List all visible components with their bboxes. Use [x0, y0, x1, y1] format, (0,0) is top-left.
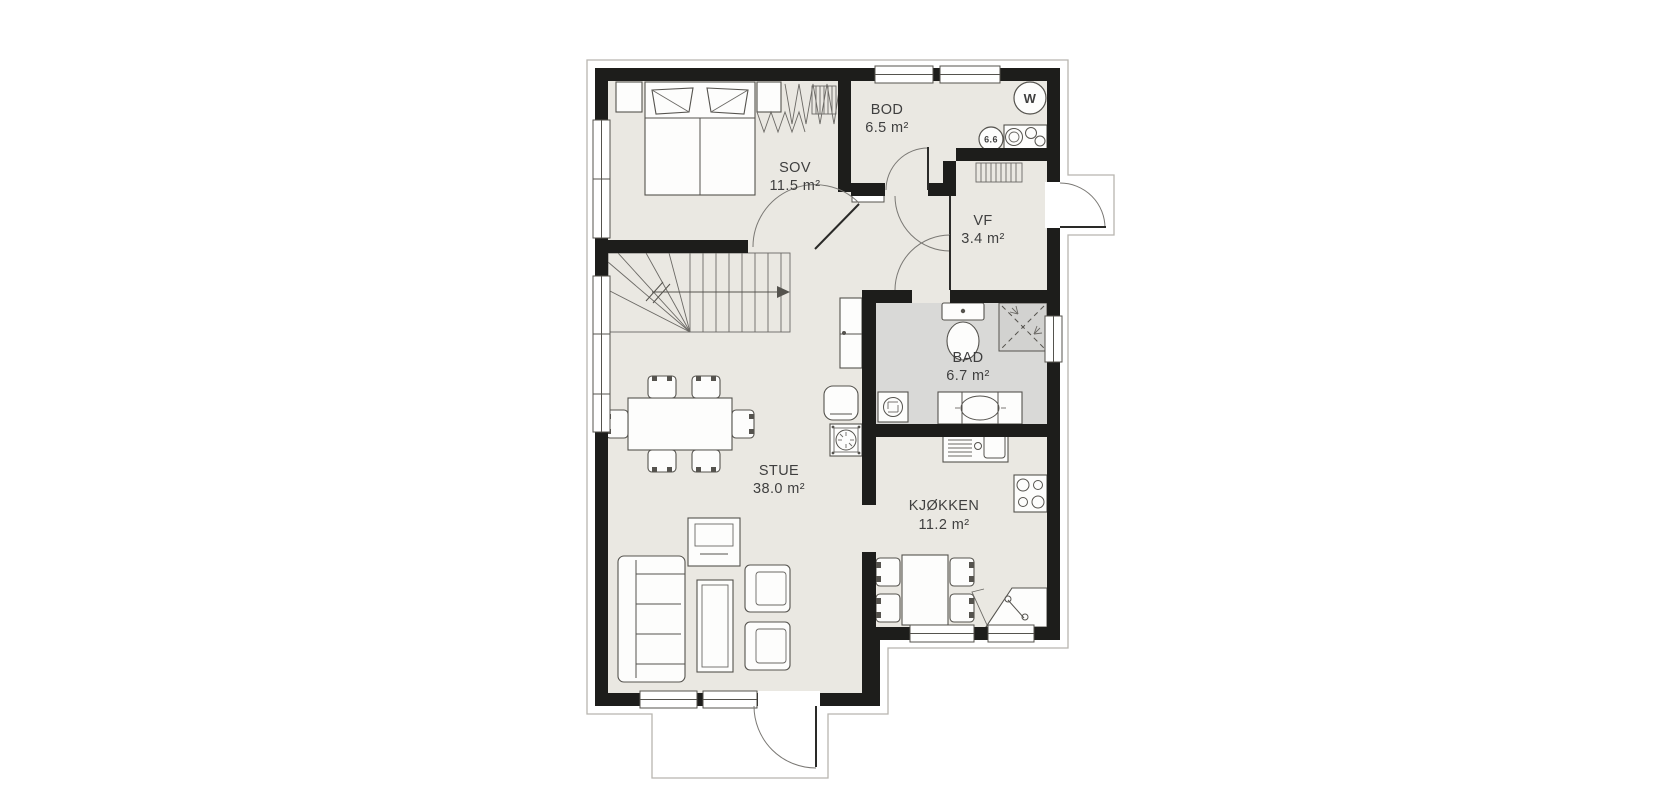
double-bed [645, 82, 755, 195]
wall-bad-left [862, 290, 876, 437]
water-heater-icon: W [1014, 82, 1046, 114]
entrance-door [1045, 182, 1106, 228]
wall-kitchen-left-upper [862, 437, 876, 505]
label-vf-area: 3.4 m² [961, 231, 1005, 247]
tv-bench [688, 518, 740, 566]
nightstand-left [616, 82, 642, 112]
window-bottom-livingroom-2 [703, 691, 757, 708]
label-stue-name: STUE [759, 463, 799, 479]
wall-bad-kitchen [862, 424, 1047, 437]
label-bod-name: BOD [871, 102, 904, 118]
wall-bod-bottom-left [851, 183, 885, 196]
wall-sov-bottom [595, 240, 748, 253]
water-heater-label: W [1024, 91, 1037, 106]
window-bottom-livingroom-1 [640, 691, 697, 708]
label-vf-name: VF [973, 213, 992, 229]
tall-cabinet [840, 298, 862, 368]
floor-plan-page: W 6.6 [0, 0, 1670, 800]
laundry-counter [1004, 125, 1047, 150]
window-bottom-kitchen-2 [988, 625, 1034, 642]
label-kjokken-name: KJØKKEN [909, 498, 980, 514]
armchair-2 [745, 622, 790, 670]
window-top-2 [940, 66, 1000, 83]
label-kjokken-area: 11.2 m² [919, 517, 970, 533]
window-right-bathroom [1045, 316, 1062, 362]
window-left-2 [593, 276, 610, 432]
reading-chair [824, 386, 858, 420]
label-stue-area: 38.0 m² [753, 481, 805, 497]
patio-door [754, 691, 820, 768]
floor-drain-icon [878, 392, 908, 422]
shower-icon [999, 303, 1047, 351]
wood-stove-icon [830, 424, 862, 456]
label-sov-name: SOV [779, 160, 811, 176]
window-top-1 [875, 66, 933, 83]
wall-kitchen-left-lower [862, 552, 876, 627]
wall-vf-left [943, 161, 956, 196]
floor-plan-canvas: W 6.6 [0, 0, 1670, 800]
stove-icon [1014, 475, 1047, 512]
armchair-1 [745, 565, 790, 612]
window-bottom-kitchen-1 [910, 625, 974, 642]
wall-bad-top-right [950, 290, 1047, 303]
nightstand-right [757, 82, 781, 112]
label-bad-area: 6.7 m² [946, 368, 990, 384]
window-left-1 [593, 120, 610, 238]
label-bod-area: 6.5 m² [865, 120, 909, 136]
label-bad-name: BAD [952, 350, 983, 366]
wall-sov-bod [838, 81, 851, 192]
wall-bod-vf [956, 148, 1047, 161]
sofa [618, 556, 685, 682]
label-sov-area: 11.5 m² [770, 178, 821, 194]
bathroom-vanity [938, 392, 1022, 424]
vent-badge-label: 6.6 [984, 135, 998, 145]
vent-badge-icon: 6.6 [979, 127, 1003, 151]
